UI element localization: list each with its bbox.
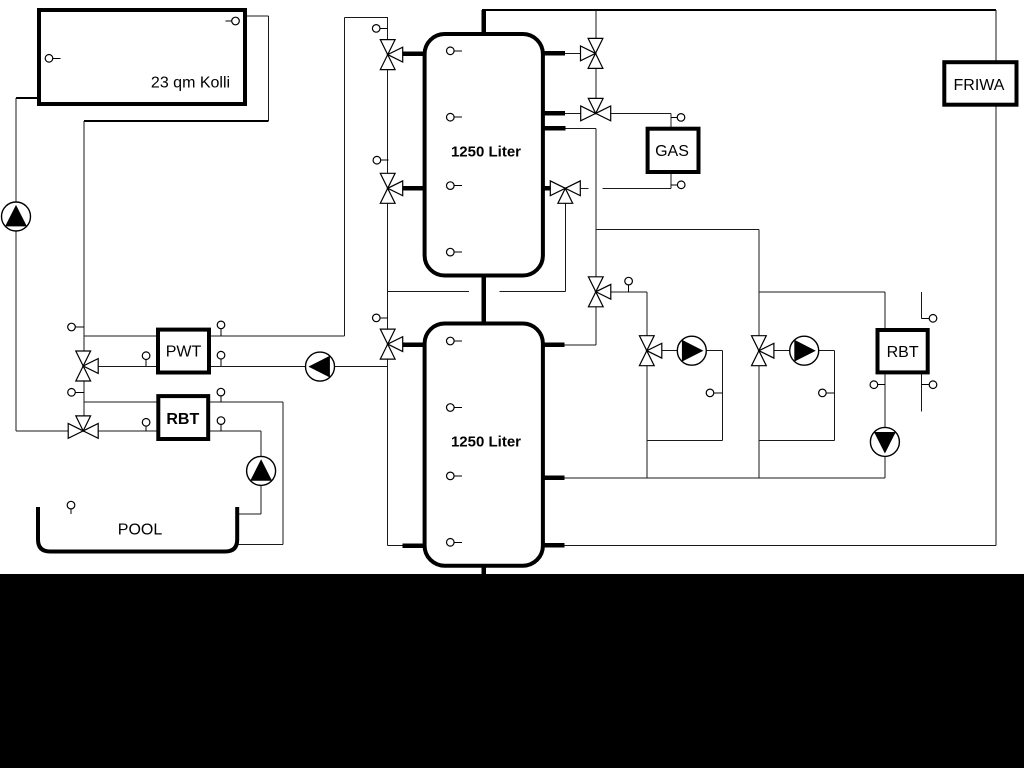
svg-text:23 qm Kolli: 23 qm Kolli	[151, 75, 230, 92]
svg-text:RBT: RBT	[887, 344, 919, 361]
svg-text:RBT: RBT	[166, 411, 199, 428]
svg-text:1250 Liter: 1250 Liter	[451, 144, 521, 161]
svg-text:PWT: PWT	[166, 344, 202, 361]
svg-text:POOL: POOL	[118, 522, 163, 539]
svg-text:1250 Liter: 1250 Liter	[451, 434, 521, 451]
svg-text:FRIWA: FRIWA	[954, 77, 1005, 94]
svg-text:GAS: GAS	[655, 143, 689, 160]
